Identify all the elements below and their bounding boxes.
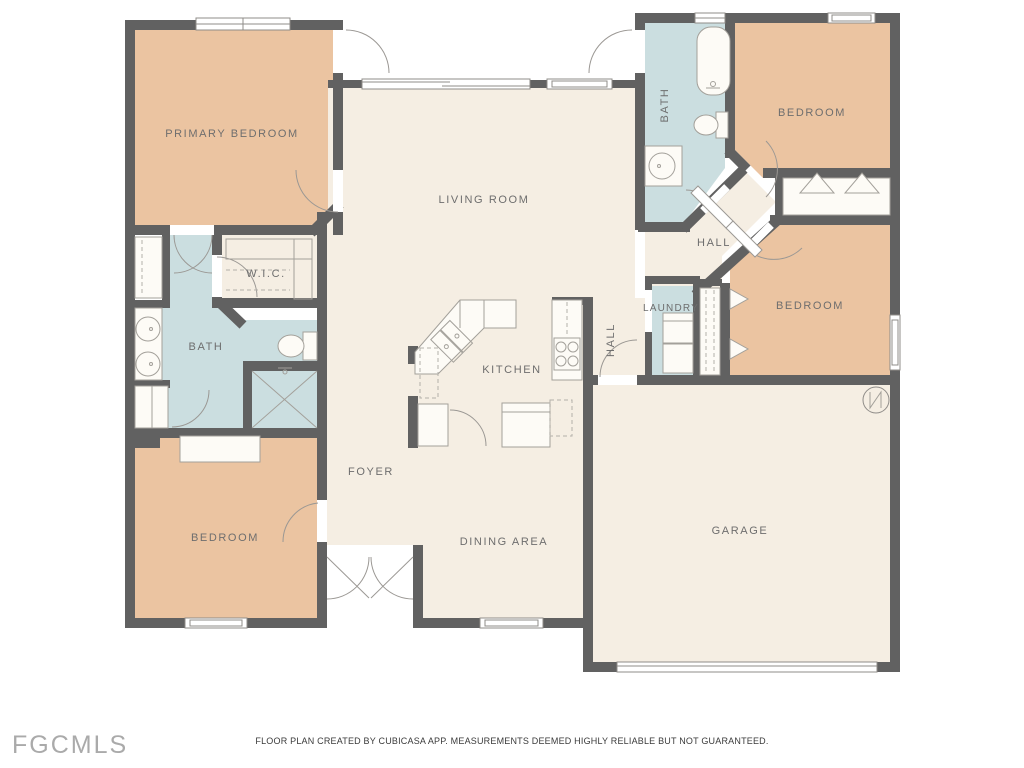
kitchen-island (502, 403, 550, 447)
guest-bath-label: BATH (659, 88, 671, 123)
sink-icon (645, 146, 682, 186)
laundry-label: LAUNDRY (643, 303, 699, 314)
door-arc (346, 30, 389, 73)
garage-door (617, 662, 877, 672)
window (480, 618, 543, 628)
living-room-label: LIVING ROOM (439, 194, 530, 206)
hall-lower-label: HALL (605, 323, 617, 357)
bedroom-top-right-floor (735, 23, 890, 178)
wic-label: W.I.C. (246, 268, 286, 280)
dining-area-label: DINING AREA (460, 536, 549, 548)
window (828, 13, 875, 23)
fridge-counter (552, 300, 582, 380)
bedroom-top-right-label: BEDROOM (778, 107, 846, 119)
hall-upper-label: HALL (697, 237, 731, 249)
floor-plan-page: PRIMARY BEDROOM LIVING ROOM W.I.C. BATH … (0, 0, 1024, 768)
primary-bath-label: BATH (189, 341, 224, 353)
floor-plan-drawing: PRIMARY BEDROOM LIVING ROOM W.I.C. BATH … (0, 0, 1024, 768)
bedroom-bottom-left-floor (135, 438, 317, 618)
hall-lower-floor (593, 298, 645, 375)
hall-closet (700, 288, 720, 375)
closet (783, 173, 890, 215)
water-heater-icon (863, 387, 889, 413)
disclaimer-text: FLOOR PLAN CREATED BY CUBICASA APP. MEAS… (0, 736, 1024, 746)
garage-label: GARAGE (712, 525, 769, 537)
closet (180, 436, 260, 462)
window (185, 618, 247, 628)
vanity-counter (135, 308, 162, 380)
window (196, 18, 290, 30)
closet (135, 237, 162, 298)
bathtub-icon (697, 27, 730, 95)
pantry (418, 404, 448, 446)
garage-floor (593, 385, 890, 662)
window (547, 79, 612, 89)
foyer-label: FOYER (348, 466, 394, 478)
window (890, 315, 900, 370)
washer-dryer-icon (663, 313, 693, 373)
room-floors (135, 23, 890, 662)
bedroom-bottom-left-label: BEDROOM (191, 532, 259, 544)
bedroom-right-label: BEDROOM (776, 300, 844, 312)
kitchen-label: KITCHEN (482, 364, 541, 376)
door-arc (589, 30, 632, 73)
primary-bedroom-label: PRIMARY BEDROOM (165, 128, 299, 140)
dining-floor (423, 545, 583, 618)
window (695, 13, 725, 23)
sliding-door (362, 79, 530, 89)
